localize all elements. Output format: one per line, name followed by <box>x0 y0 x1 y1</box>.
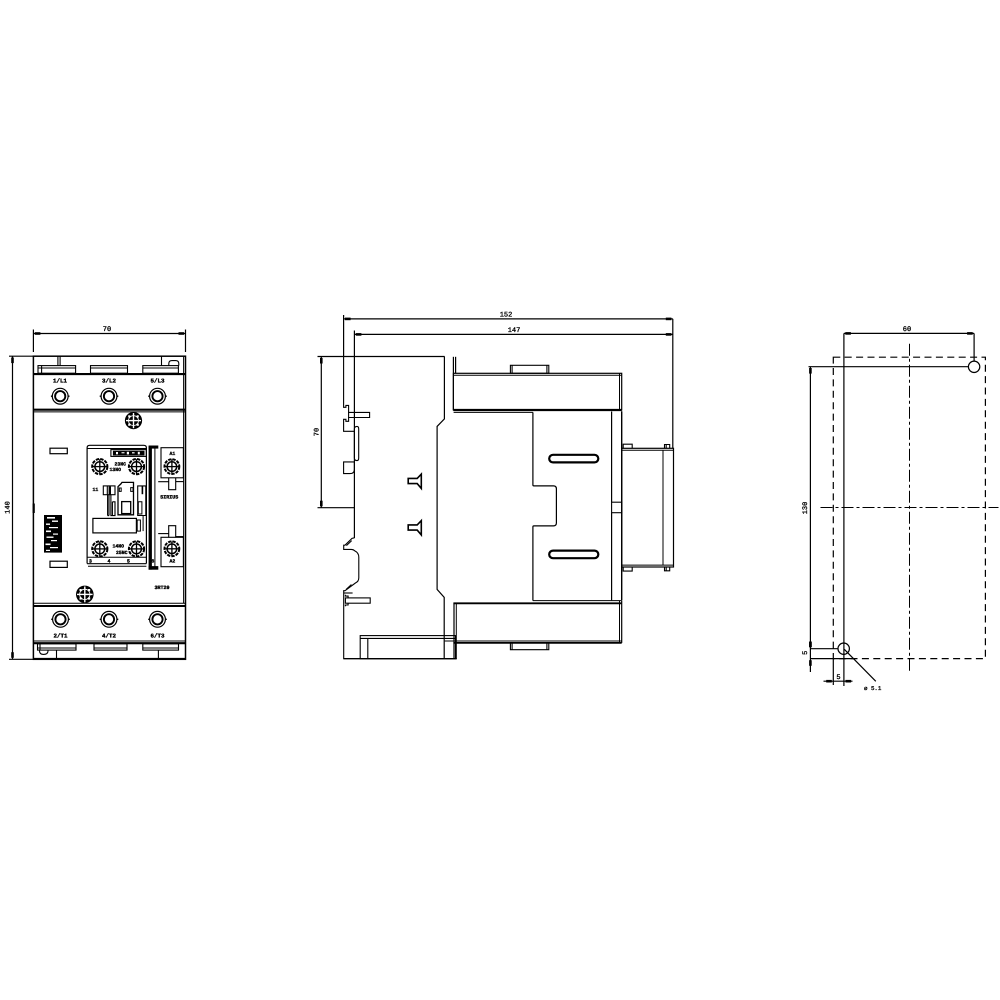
svg-text:A1: A1 <box>170 451 176 457</box>
svg-text:5: 5 <box>836 674 840 682</box>
svg-text:147: 147 <box>508 327 521 335</box>
svg-text:5: 5 <box>802 651 810 655</box>
svg-text:70: 70 <box>313 428 321 436</box>
svg-text:A2: A2 <box>170 559 176 565</box>
svg-text:3RT20: 3RT20 <box>155 585 170 591</box>
svg-text:ø 5.1: ø 5.1 <box>864 685 882 692</box>
svg-text:11: 11 <box>93 487 99 493</box>
svg-text:3/L2: 3/L2 <box>102 377 116 384</box>
svg-text:14NO: 14NO <box>113 544 125 550</box>
svg-text:5/L3: 5/L3 <box>151 377 165 384</box>
svg-text:23NC: 23NC <box>115 462 127 468</box>
svg-text:1/L1: 1/L1 <box>53 377 67 384</box>
svg-text:25NC: 25NC <box>116 550 128 556</box>
svg-text:4/T2: 4/T2 <box>102 633 116 640</box>
svg-text:SIRIUS: SIRIUS <box>160 495 178 501</box>
svg-text:70: 70 <box>103 326 111 334</box>
svg-text:60: 60 <box>903 326 911 334</box>
svg-text:140: 140 <box>5 501 13 514</box>
svg-text:130: 130 <box>802 502 810 515</box>
svg-text:152: 152 <box>500 311 513 319</box>
svg-text:2/T1: 2/T1 <box>54 633 68 640</box>
svg-text:6/T3: 6/T3 <box>151 633 165 640</box>
svg-text:13NO: 13NO <box>110 467 122 473</box>
